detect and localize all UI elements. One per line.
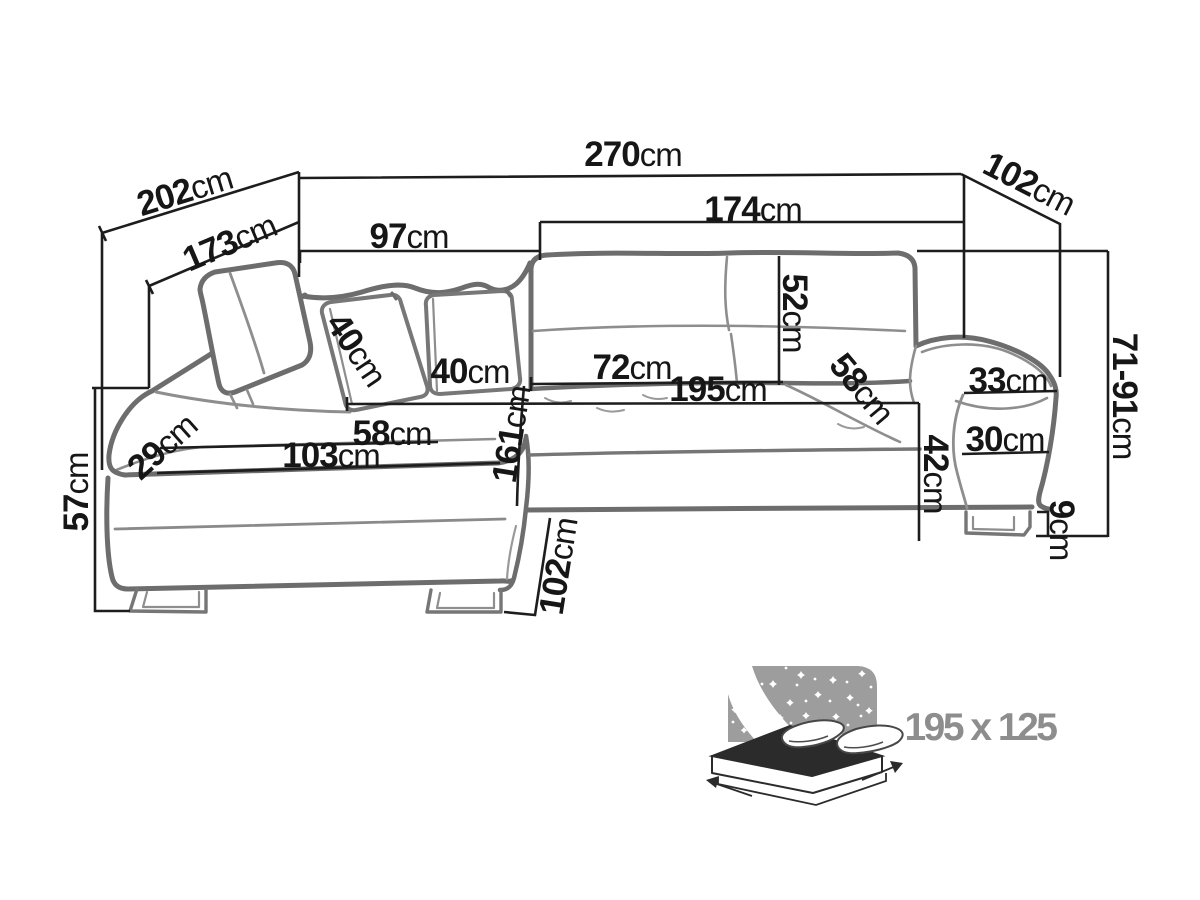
svg-text:102cm: 102cm bbox=[532, 515, 586, 617]
svg-text:202cm: 202cm bbox=[132, 158, 237, 224]
svg-text:103cm: 103cm bbox=[282, 436, 379, 475]
svg-text:174cm: 174cm bbox=[704, 190, 801, 229]
svg-text:52cm: 52cm bbox=[775, 274, 814, 353]
svg-text:42cm: 42cm bbox=[916, 435, 955, 514]
svg-text:30cm: 30cm bbox=[966, 420, 1045, 459]
svg-text:71-91cm: 71-91cm bbox=[1105, 333, 1144, 460]
svg-text:33cm: 33cm bbox=[969, 361, 1048, 400]
svg-text:270cm: 270cm bbox=[584, 135, 681, 174]
svg-text:102cm: 102cm bbox=[977, 144, 1081, 223]
svg-text:195cm: 195cm bbox=[669, 370, 766, 409]
svg-text:9cm: 9cm bbox=[1042, 500, 1081, 560]
svg-text:40cm: 40cm bbox=[431, 352, 510, 391]
svg-text:97cm: 97cm bbox=[370, 217, 449, 256]
svg-text:72cm: 72cm bbox=[593, 348, 672, 387]
svg-text:195 x 125: 195 x 125 bbox=[904, 706, 1057, 749]
svg-text:57cm: 57cm bbox=[57, 453, 96, 532]
